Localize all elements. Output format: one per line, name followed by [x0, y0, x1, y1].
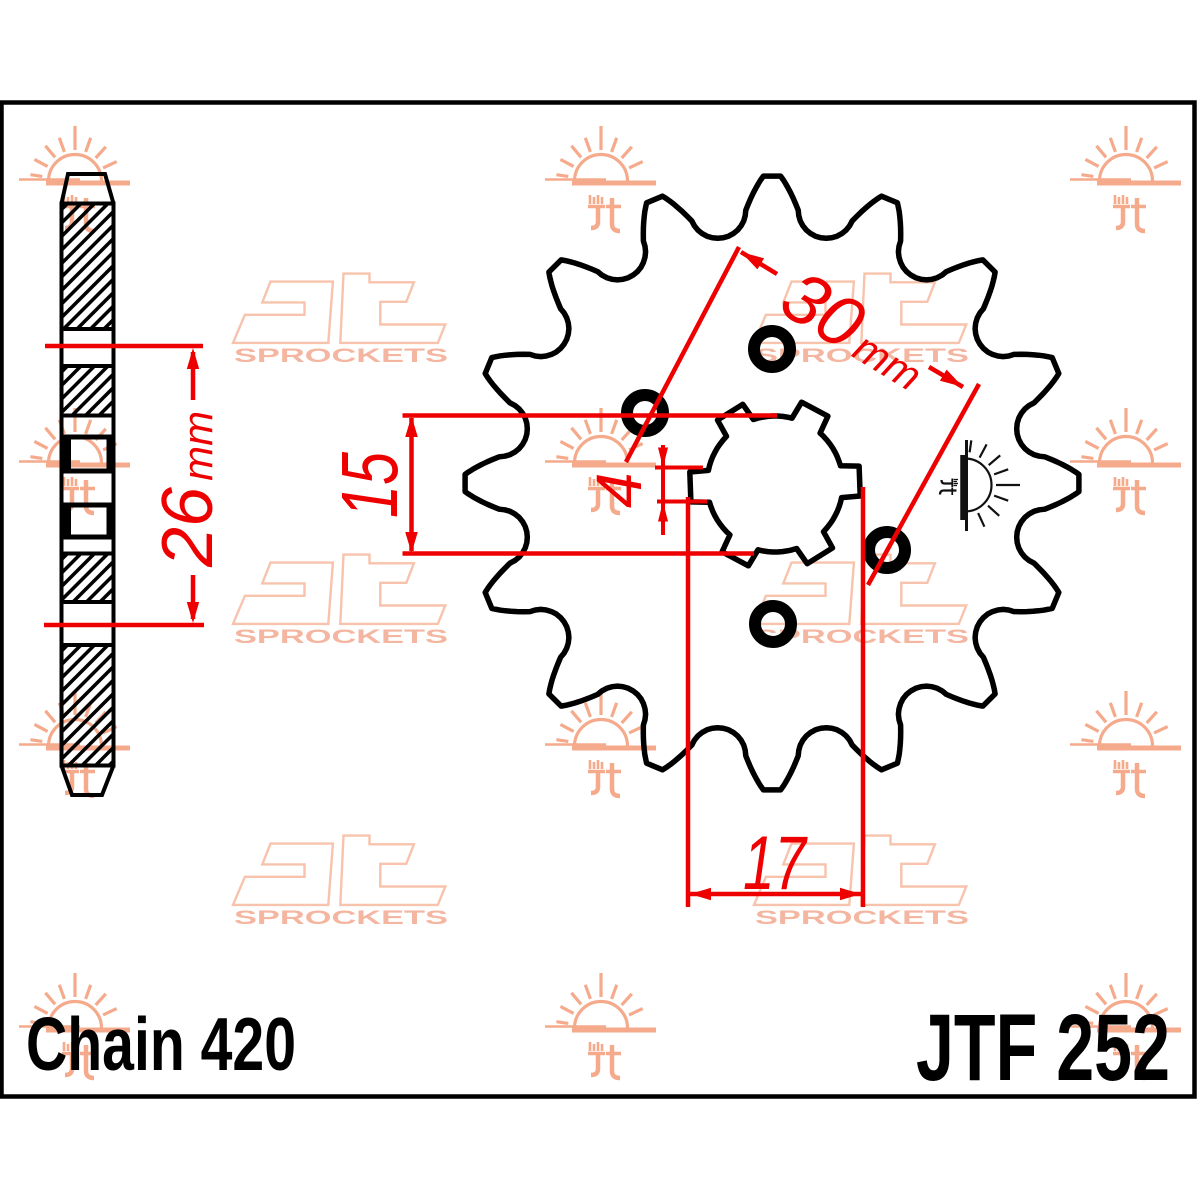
svg-text:4: 4 — [583, 472, 655, 508]
svg-text:JTF 252: JTF 252 — [916, 995, 1170, 1101]
svg-text:SPROCKETS: SPROCKETS — [234, 346, 448, 367]
svg-text:SPROCKETS: SPROCKETS — [234, 908, 448, 929]
svg-text:Chain 420: Chain 420 — [26, 1002, 296, 1086]
svg-text:SPROCKETS: SPROCKETS — [234, 627, 448, 648]
svg-text:SPROCKETS: SPROCKETS — [755, 908, 969, 929]
svg-text:17: 17 — [743, 821, 808, 906]
svg-text:15: 15 — [325, 452, 414, 518]
